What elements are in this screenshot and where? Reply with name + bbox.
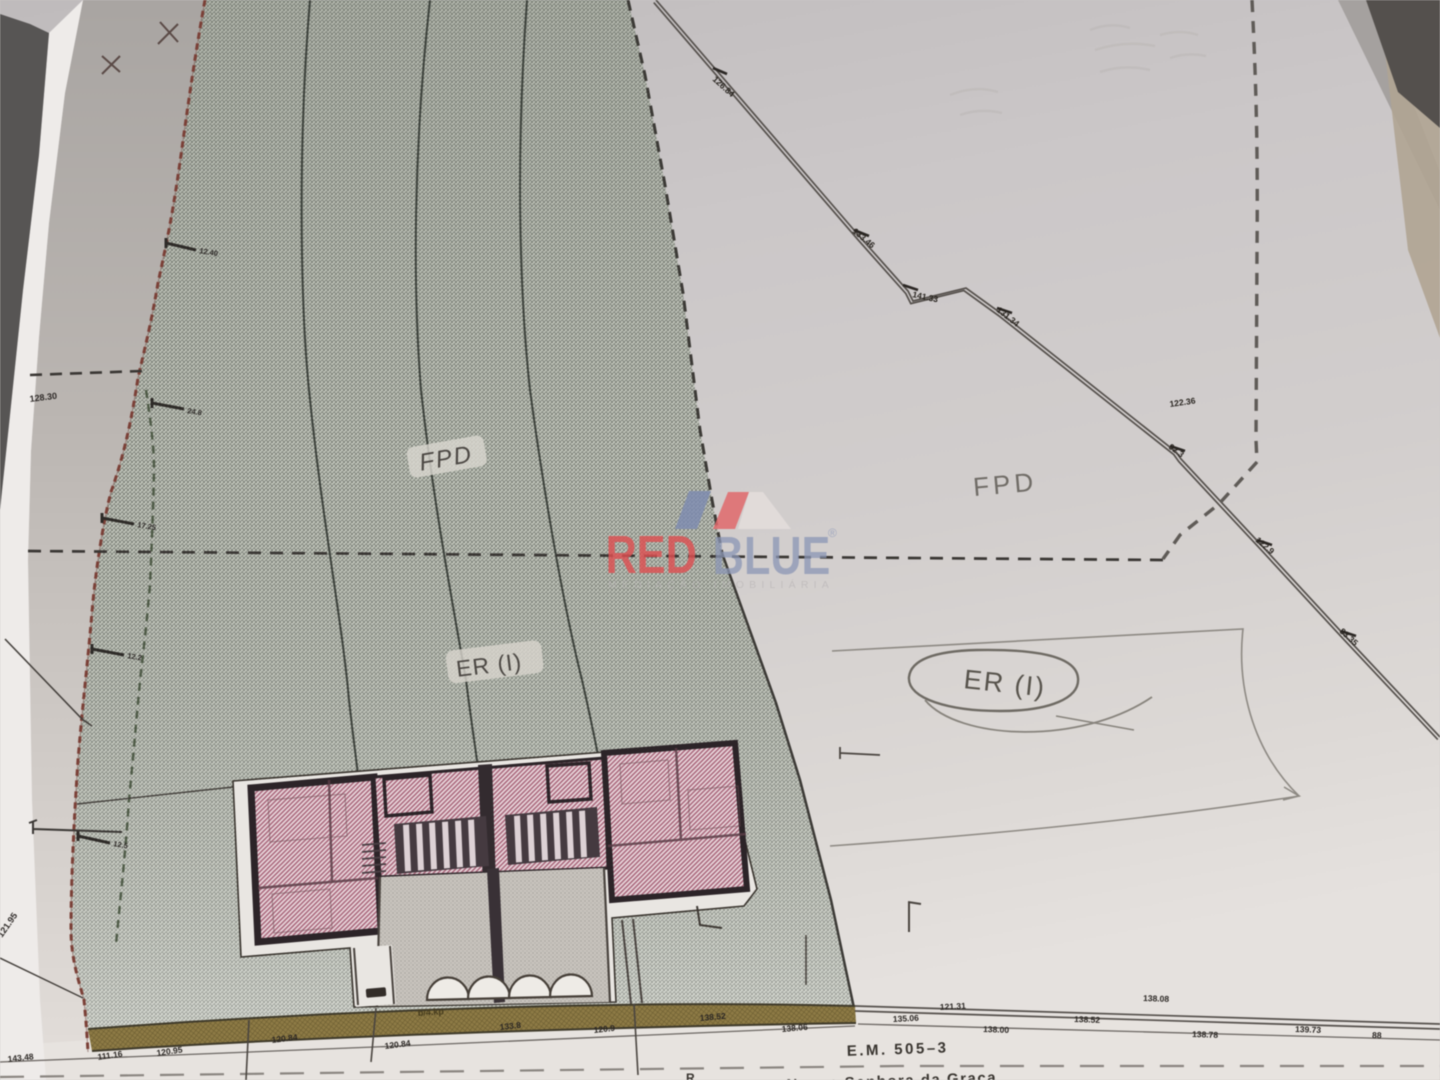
svg-text:®: ®: [828, 526, 837, 540]
svg-text:138.52: 138.52: [1074, 1014, 1101, 1025]
svg-text:RED: RED: [606, 526, 697, 586]
svg-text:135.06: 135.06: [893, 1013, 920, 1024]
svg-text:b/4.kp: b/4.kp: [417, 1006, 444, 1018]
svg-text:MEDIAÇÃO IMOBILIÁRIA: MEDIAÇÃO IMOBILIÁRIA: [608, 578, 834, 591]
svg-text:FPD: FPD: [972, 467, 1038, 502]
svg-text:138.00: 138.00: [983, 1024, 1010, 1035]
svg-text:138.08: 138.08: [1143, 993, 1170, 1004]
svg-text:88: 88: [1372, 1030, 1382, 1040]
svg-text:R: R: [686, 1071, 695, 1080]
svg-text:BLUE: BLUE: [713, 527, 831, 587]
svg-text:138.78: 138.78: [1192, 1029, 1219, 1040]
svg-text:121.31: 121.31: [940, 1001, 967, 1012]
svg-text:E.M. 505–3: E.M. 505–3: [847, 1039, 949, 1060]
svg-text:139.73: 139.73: [1295, 1024, 1322, 1035]
